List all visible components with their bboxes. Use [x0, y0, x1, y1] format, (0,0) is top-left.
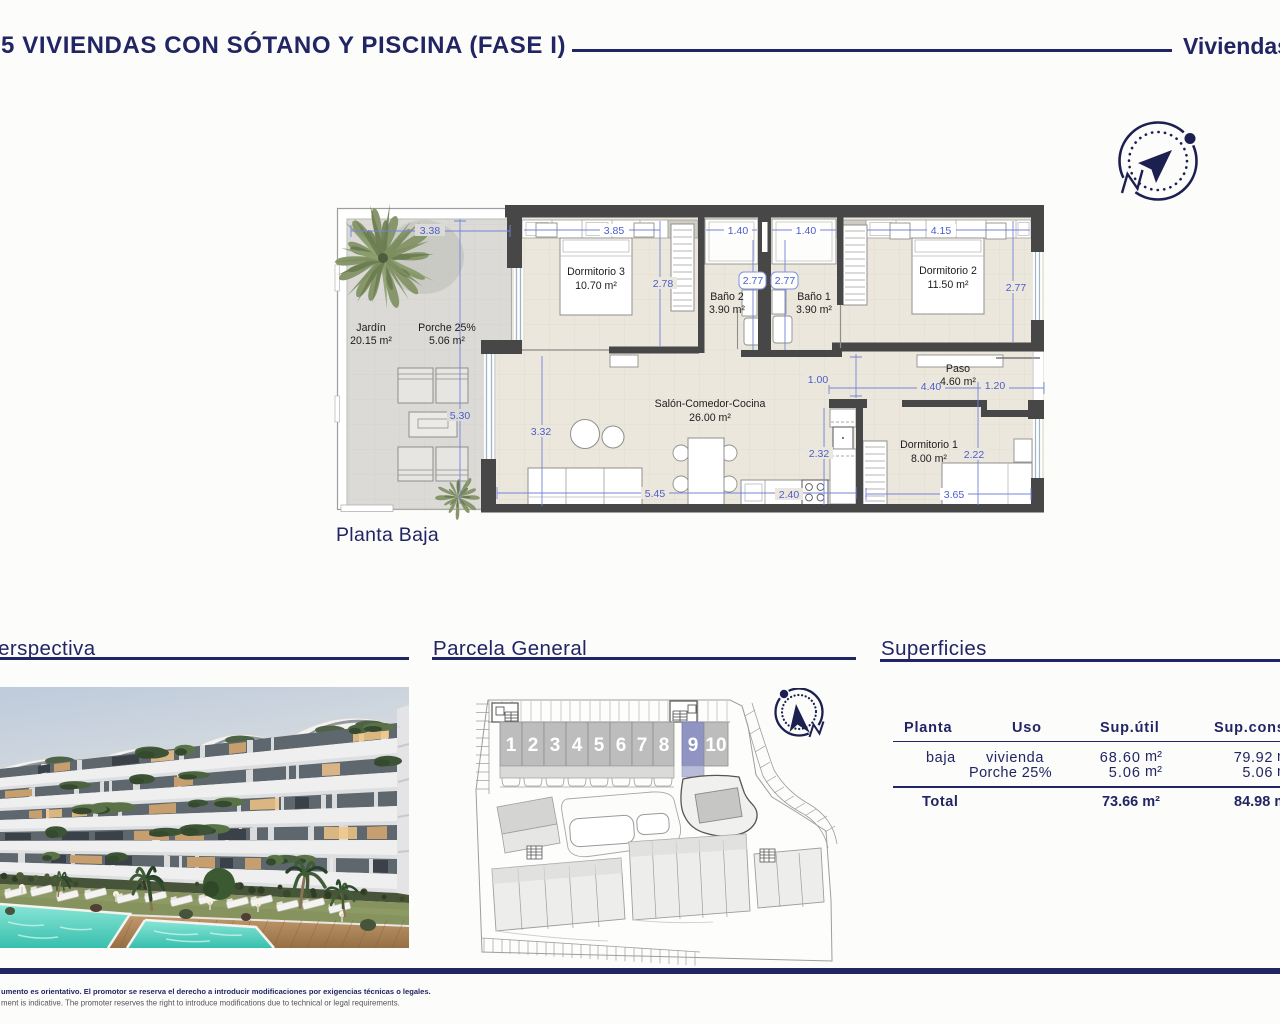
svg-text:2.22: 2.22 — [964, 449, 985, 461]
svg-text:1: 1 — [506, 735, 517, 756]
svg-text:4: 4 — [572, 735, 583, 756]
svg-text:3.85: 3.85 — [604, 225, 625, 237]
svg-text:3.32: 3.32 — [531, 426, 552, 438]
svg-text:2.77: 2.77 — [743, 275, 764, 287]
svg-text:Salón-Comedor-Cocina: Salón-Comedor-Cocina — [655, 398, 766, 410]
svg-text:2.77: 2.77 — [1006, 282, 1027, 294]
svg-text:Baño 1: Baño 1 — [797, 291, 831, 303]
svg-text:5.45: 5.45 — [645, 488, 666, 500]
svg-text:Dormitorio 2: Dormitorio 2 — [919, 265, 977, 277]
svg-text:4.15: 4.15 — [931, 225, 952, 237]
svg-text:3: 3 — [550, 735, 561, 756]
svg-text:Dormitorio 3: Dormitorio 3 — [567, 266, 625, 278]
svg-text:1.20: 1.20 — [985, 380, 1006, 392]
svg-text:3.90 m²: 3.90 m² — [709, 304, 745, 316]
svg-text:5: 5 — [594, 735, 605, 756]
svg-text:10.70 m²: 10.70 m² — [575, 280, 617, 292]
svg-text:3.38: 3.38 — [420, 225, 441, 237]
svg-text:9: 9 — [688, 735, 699, 756]
svg-text:1.00: 1.00 — [808, 374, 829, 386]
svg-text:8: 8 — [659, 735, 670, 756]
svg-text:3.90 m²: 3.90 m² — [796, 304, 832, 316]
svg-text:11.50 m²: 11.50 m² — [927, 279, 968, 291]
svg-text:Dormitorio 1: Dormitorio 1 — [900, 439, 958, 451]
svg-text:2: 2 — [528, 735, 539, 756]
svg-text:Porche 25%: Porche 25% — [418, 322, 476, 334]
svg-text:5.06 m²: 5.06 m² — [429, 335, 465, 347]
svg-text:6: 6 — [616, 735, 627, 756]
svg-text:26.00 m²: 26.00 m² — [689, 412, 731, 424]
svg-text:Baño 2: Baño 2 — [710, 291, 744, 303]
svg-text:7: 7 — [637, 735, 648, 756]
svg-text:2.32: 2.32 — [809, 448, 830, 460]
svg-text:Paso: Paso — [946, 363, 970, 375]
svg-text:10: 10 — [705, 735, 726, 756]
svg-text:20.15 m²: 20.15 m² — [350, 335, 392, 347]
svg-text:5.30: 5.30 — [450, 410, 471, 422]
svg-text:1.40: 1.40 — [796, 225, 817, 237]
svg-text:2.77: 2.77 — [775, 275, 796, 287]
svg-text:2.78: 2.78 — [653, 278, 674, 290]
svg-text:2.40: 2.40 — [779, 489, 800, 501]
svg-text:1.40: 1.40 — [728, 225, 749, 237]
svg-text:4.40: 4.40 — [921, 381, 942, 393]
svg-text:Jardín: Jardín — [356, 322, 386, 334]
svg-text:4.60 m²: 4.60 m² — [940, 376, 976, 388]
svg-text:8.00 m²: 8.00 m² — [911, 453, 947, 465]
svg-text:3.65: 3.65 — [944, 489, 965, 501]
